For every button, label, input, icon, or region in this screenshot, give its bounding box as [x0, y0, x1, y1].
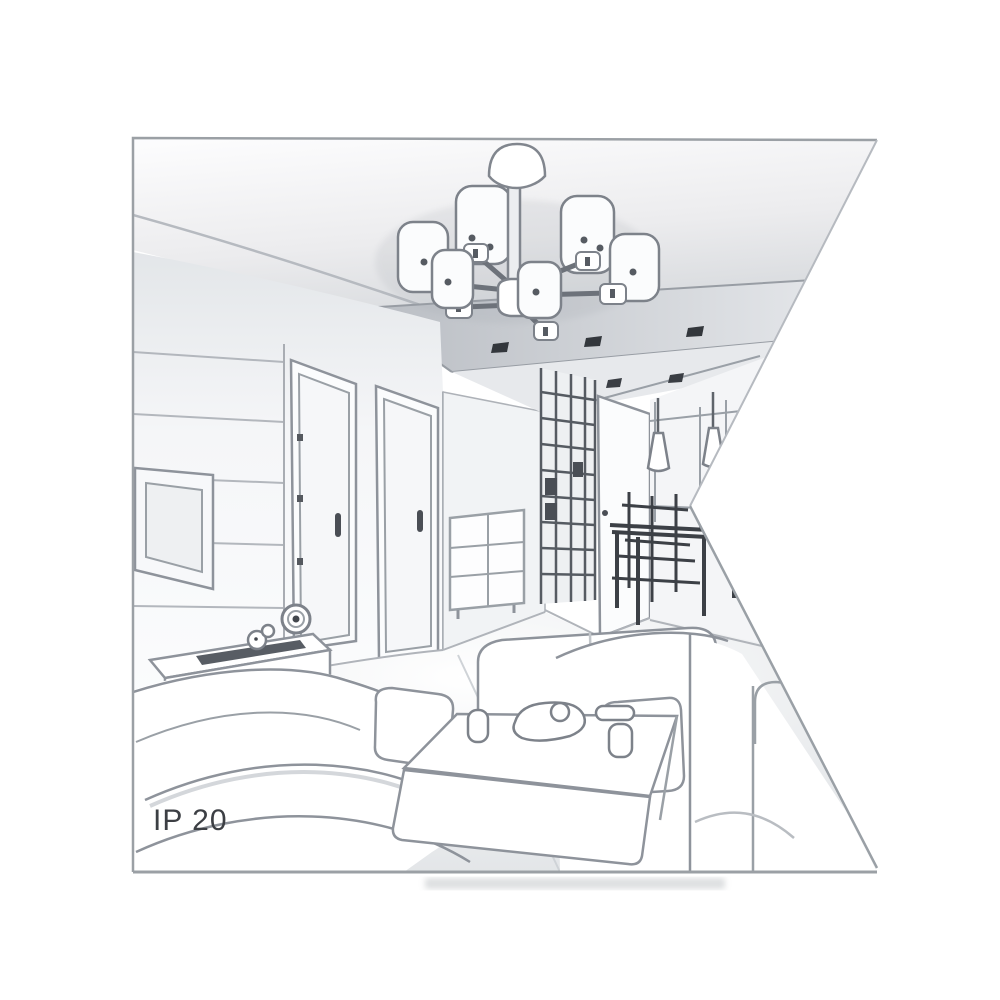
- ip-rating-label: IP 20: [153, 804, 228, 838]
- product-image: IP 20: [0, 0, 1000, 1000]
- door-handle: [335, 513, 341, 537]
- clock: [282, 605, 310, 633]
- drop-shadow: [425, 878, 725, 889]
- lamp-shade: [518, 262, 561, 318]
- lamp-shade: [432, 250, 473, 308]
- drawer-cabinet: [450, 510, 524, 619]
- door-right: [376, 386, 438, 659]
- room-illustration: [0, 0, 1000, 1000]
- ceiling-canopy: [489, 144, 545, 188]
- tv: [135, 468, 213, 589]
- hallway: [443, 332, 877, 660]
- kitchen-door: [598, 396, 650, 637]
- tv-wall: [133, 252, 443, 704]
- dining-window: [650, 352, 780, 660]
- door-handle: [417, 510, 423, 532]
- hallway-wardrobe: [540, 368, 596, 604]
